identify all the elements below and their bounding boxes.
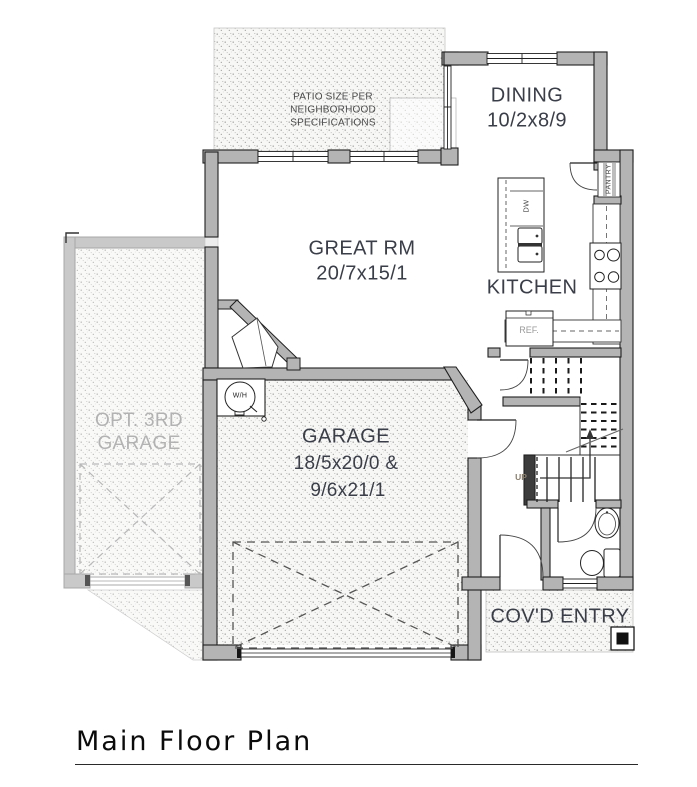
dining-room-label: DINING [491, 85, 563, 108]
powder-room-door [558, 508, 596, 542]
great-room-window [350, 152, 418, 162]
door-jamb [237, 647, 241, 658]
wall-segment [468, 458, 481, 660]
door-jamb [185, 575, 190, 586]
range-cooktop [590, 243, 621, 289]
wall-segment [441, 148, 458, 165]
lower-run-treads [537, 457, 595, 502]
great-room-label: GREAT RM [309, 238, 416, 261]
wall-segment [64, 237, 213, 248]
opt-garage-label-line2: GARAGE [97, 433, 180, 455]
wall-segment [205, 152, 218, 237]
wall-segment [620, 150, 633, 590]
powder-room-window [563, 579, 597, 588]
door-jamb [451, 647, 455, 658]
garage-label: GARAGE [302, 426, 390, 449]
wall-segment [596, 500, 621, 508]
opt-garage-label-line1: OPT. 3RD [95, 410, 183, 432]
wall-segment [527, 500, 558, 508]
patio-slider-door [444, 66, 451, 149]
staircase [531, 358, 623, 502]
toilet [581, 549, 621, 577]
porch-post [611, 627, 634, 650]
wall-segment [462, 577, 500, 590]
plan-title: Main Floor Plan [76, 726, 312, 757]
garage-dimensions-1: 18/5x20/0 & [294, 453, 399, 475]
title-underline [75, 764, 638, 765]
wall-segment [503, 397, 580, 406]
wall-segment [597, 577, 633, 590]
covered-entry-label: COV'D ENTRY [491, 606, 630, 629]
great-room-dimensions: 20/7x15/1 [316, 263, 407, 286]
kitchen-sink [518, 228, 542, 262]
stair-break-line [566, 429, 623, 452]
kitchen-fixtures [498, 162, 621, 346]
garage-entry-door [477, 420, 516, 458]
door-jamb [85, 575, 90, 586]
front-door [500, 535, 543, 577]
floor-plan-page: PATIO SIZE PER NEIGHBORHOOD SPECIFICATIO… [0, 0, 697, 787]
powder-sink [595, 508, 619, 538]
great-room-window [258, 152, 328, 162]
wall-segment [328, 150, 350, 163]
wall-segment [203, 645, 241, 660]
garage-dimensions-2: 9/6x21/1 [310, 480, 385, 502]
stairs-up-label: UP [515, 472, 527, 482]
wall-segment [444, 52, 488, 65]
wall-segment [488, 348, 500, 357]
dishwasher-label: DW [522, 199, 531, 212]
wall-segment [530, 348, 621, 357]
wall-segment [203, 380, 217, 660]
wall-segment [203, 368, 451, 380]
upper-run-treads [531, 358, 581, 396]
wall-segment [543, 577, 563, 590]
driveway-wedge [88, 590, 203, 660]
patio-note-line1: PATIO SIZE PER [290, 91, 376, 104]
patio-note: PATIO SIZE PER NEIGHBORHOOD SPECIFICATIO… [290, 91, 376, 130]
firebox [232, 318, 278, 368]
wall-junction-gap [205, 237, 218, 247]
mid-run-treads [581, 404, 620, 447]
kitchen-label: KITCHEN [487, 277, 578, 300]
corner-fireplace [218, 300, 300, 370]
dining-room-dimensions: 10/2x8/9 [487, 110, 567, 133]
dining-window [487, 54, 557, 64]
pantry-door [570, 163, 597, 190]
powder-room-fixtures [581, 508, 621, 577]
patio-note-line3: SPECIFICATIONS [290, 117, 376, 130]
pantry-label: PANTRY [606, 164, 613, 194]
refrigerator-label: REF. [519, 325, 539, 335]
garage-floor [217, 380, 468, 645]
wall-segment [205, 247, 218, 368]
wall-segment [594, 52, 607, 162]
patio-note-line2: NEIGHBORHOOD [290, 104, 376, 117]
water-heater-closet [217, 379, 266, 421]
hall-closet-door [500, 360, 528, 390]
water-heater-label: W/H [233, 393, 248, 400]
wall-segment [64, 237, 75, 588]
